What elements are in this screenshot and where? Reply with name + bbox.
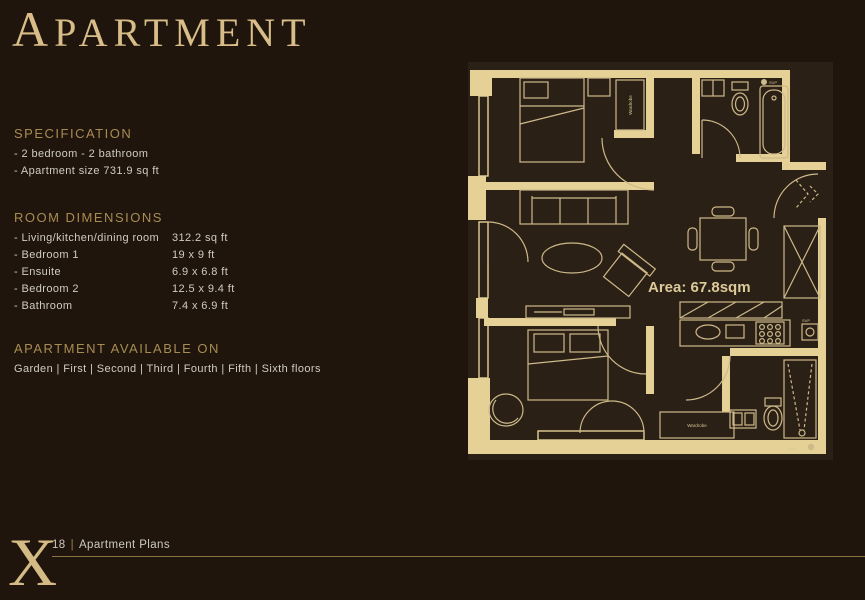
brochure-page: { "page": { "title": "APARTMENT" }, "spe… xyxy=(0,0,865,578)
dimension-row: - Bedroom 1 19 x 9 ft xyxy=(14,250,460,260)
dimension-label: - Ensuite xyxy=(14,267,172,277)
room-dimensions-heading: ROOM DIMENSIONS xyxy=(14,210,460,225)
footer-caption: 18|Apartment Plans xyxy=(52,539,170,551)
specification-section: SPECIFICATION - 2 bedroom - 2 bathroom -… xyxy=(14,126,460,176)
area-label: Area: 67.8sqm xyxy=(648,279,751,296)
footer-ornament-letter: X xyxy=(8,528,57,596)
details-column: SPECIFICATION - 2 bedroom - 2 bathroom -… xyxy=(14,126,460,374)
footer-rule xyxy=(52,556,865,557)
room-dimensions-section: ROOM DIMENSIONS - Living/kitchen/dining … xyxy=(14,210,460,311)
svp-label: SVP xyxy=(802,318,810,323)
floorplan-image: Wardrobe SVP Area: 67.8sqm xyxy=(468,62,833,460)
dimension-row: - Ensuite 6.9 x 6.8 ft xyxy=(14,267,460,277)
footer-page-number: 18 xyxy=(52,539,66,551)
dimension-value: 19 x 9 ft xyxy=(172,250,215,260)
specification-heading: SPECIFICATION xyxy=(14,126,460,141)
dimension-value: 312.2 sq ft xyxy=(172,233,228,243)
dimension-value: 12.5 x 9.4 ft xyxy=(172,284,235,294)
dimension-label: - Bedroom 2 xyxy=(14,284,172,294)
specification-item: - 2 bedroom - 2 bathroom xyxy=(14,149,460,159)
dimension-label: - Bedroom 1 xyxy=(14,250,172,260)
dimension-row: - Living/kitchen/dining room 312.2 sq ft xyxy=(14,233,460,243)
wardrobe-label: Wardrobe xyxy=(687,423,707,428)
dimension-row: - Bathroom 7.4 x 6.9 ft xyxy=(14,301,460,311)
footer-section-title: Apartment Plans xyxy=(79,539,170,551)
wardrobe-label: Wardrobe xyxy=(628,95,633,115)
svp-label: SVP xyxy=(769,80,777,85)
svp-label: SVP xyxy=(788,446,796,451)
specification-item: - Apartment size 731.9 sq ft xyxy=(14,166,460,176)
dimension-row: - Bedroom 2 12.5 x 9.4 ft xyxy=(14,284,460,294)
footer-separator: | xyxy=(66,539,79,551)
availability-floors: Garden | First | Second | Third | Fourth… xyxy=(14,364,460,374)
dimension-value: 7.4 x 6.9 ft xyxy=(172,301,228,311)
dimension-value: 6.9 x 6.8 ft xyxy=(172,267,228,277)
availability-heading: APARTMENT AVAILABLE ON xyxy=(14,341,460,356)
dimension-label: - Bathroom xyxy=(14,301,172,311)
floorplan-svg: Wardrobe SVP Area: 67.8sqm xyxy=(468,62,833,460)
dimension-label: - Living/kitchen/dining room xyxy=(14,233,172,243)
page-title: APARTMENT xyxy=(12,2,312,60)
availability-section: APARTMENT AVAILABLE ON Garden | First | … xyxy=(14,341,460,374)
